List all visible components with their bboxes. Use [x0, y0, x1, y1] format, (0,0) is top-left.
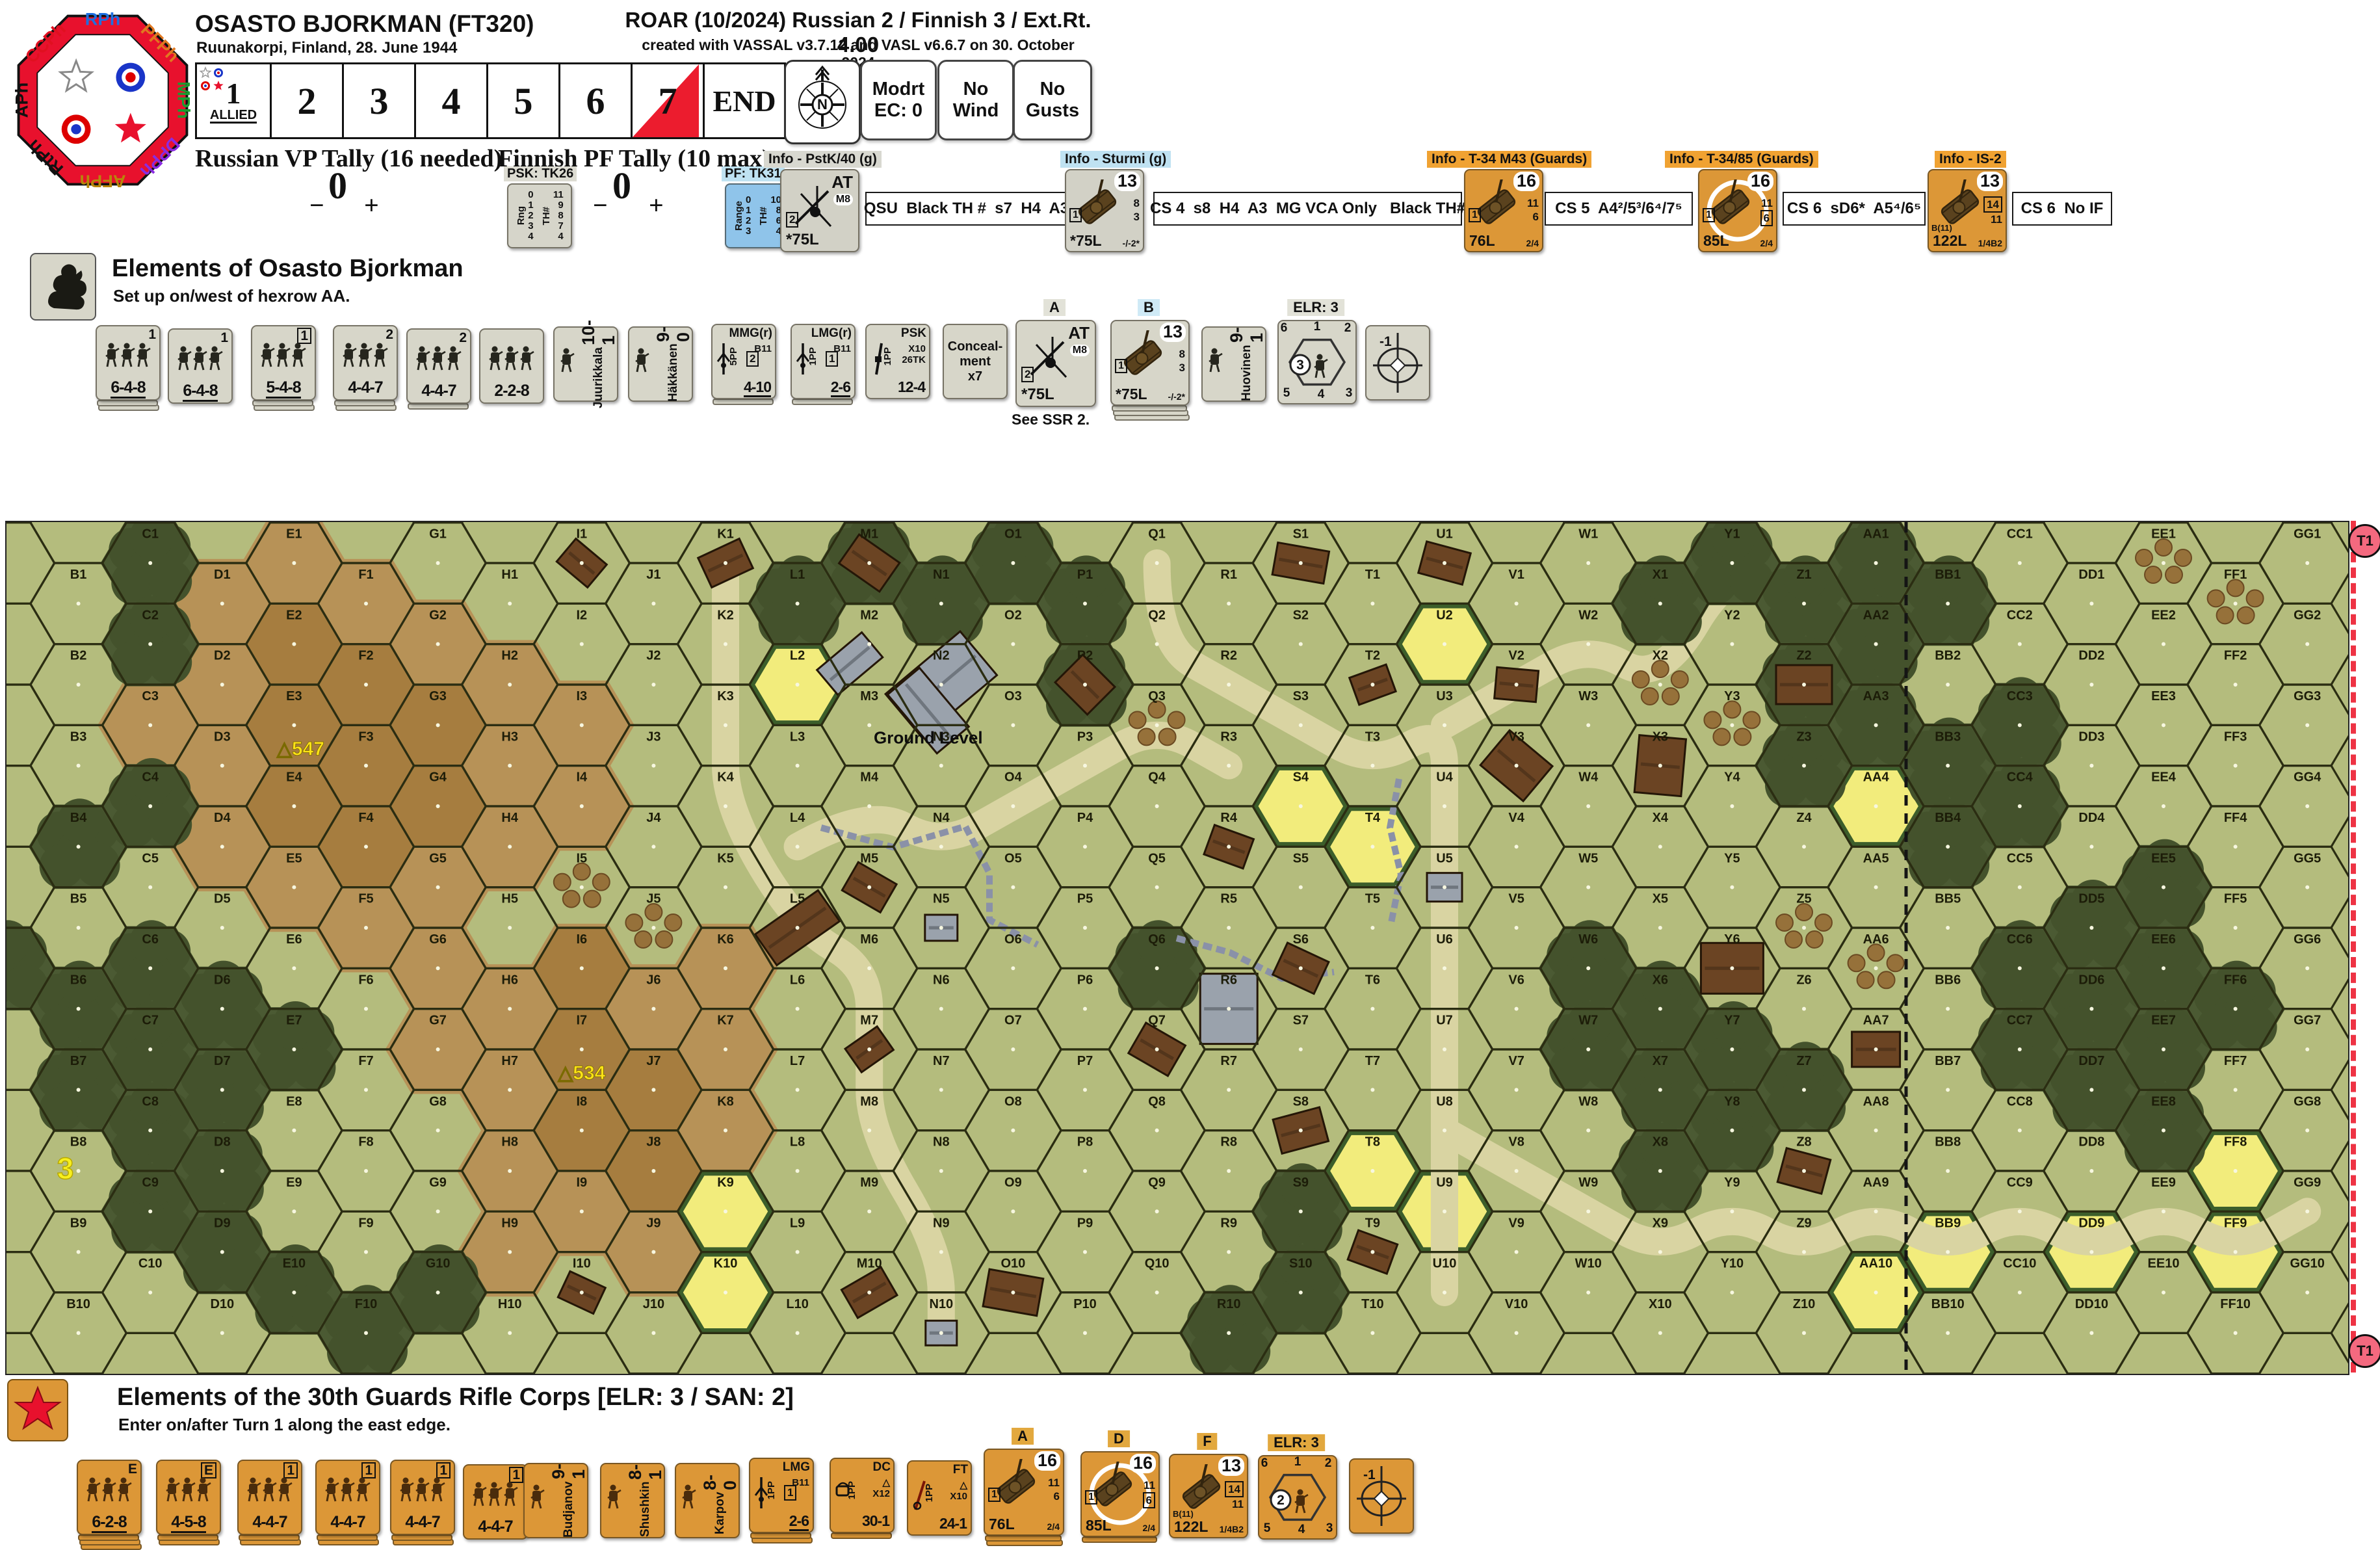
tk-col-label: TH# — [541, 207, 552, 225]
hex-label: Y3 — [1724, 689, 1740, 703]
hex-center-dot — [292, 642, 296, 646]
infantry-figures-icon — [164, 1475, 212, 1504]
ec-button[interactable]: ModrtEC: 0 — [860, 60, 937, 140]
counter-crosshair-rus-16[interactable]: -1 — [1349, 1458, 1411, 1531]
hex-center-dot — [651, 764, 655, 768]
orchard-tree-icon — [1878, 971, 1895, 988]
hex-label: C8 — [142, 1094, 159, 1109]
hex-center-dot — [1083, 601, 1087, 605]
counter-4-4-7-rus-4[interactable]: 1 4-4-7 — [390, 1460, 452, 1532]
hex-center-dot — [1011, 561, 1015, 565]
hex-center-dot — [1515, 764, 1519, 768]
counter-face[interactable]: PSK 1PPX1026TK12-4 — [865, 324, 930, 399]
hex-label: L2 — [790, 649, 805, 663]
hex-center-dot — [1730, 966, 1734, 970]
tk-counter-0[interactable]: Rng01234TH#119874 — [507, 183, 572, 248]
hex-label: X6 — [1653, 973, 1668, 987]
svg-text:4: 4 — [1318, 387, 1325, 401]
counter-face[interactable]: 13831*75L-/-2* — [1065, 169, 1144, 252]
counter-vehicle-info-4[interactable]: 131411B(11)122L1/4B2 — [1928, 169, 2004, 250]
hex-label: Q4 — [1148, 770, 1166, 785]
hex-center-dot — [77, 1250, 81, 1254]
counter-4-4-7-rus-2[interactable]: 1 4-4-7 — [237, 1460, 300, 1532]
hex-center-dot — [1515, 926, 1519, 930]
counter-6-4-8-fin-0[interactable]: 1 6-4-8 — [96, 325, 158, 398]
counter-4-4-7-rus-5[interactable]: 1 4-4-7 — [463, 1464, 525, 1537]
counter-Shushkin-rus-7[interactable]: Shushkin8-1 — [600, 1463, 662, 1536]
counter-conceal-fin-11[interactable]: Conceal-mentx7 — [943, 324, 1005, 397]
counter-sniper-rus-15[interactable]: 1234562 ELR: 3 — [1258, 1455, 1335, 1537]
turn-cell-5[interactable]: 5 — [488, 62, 560, 139]
hex-label: Q3 — [1148, 689, 1166, 703]
hex-label: R3 — [1220, 729, 1237, 744]
hex-label: O9 — [1004, 1176, 1022, 1190]
vehicle-top-number: 16 — [1747, 172, 1773, 191]
phase-label-RPh: RPh — [85, 9, 121, 29]
hex-label: BB8 — [1935, 1135, 1961, 1149]
counter-face[interactable]: 1 4-4-7 — [315, 1460, 380, 1535]
hex-label: T8 — [1365, 1135, 1380, 1149]
counter-Karpov-rus-8[interactable]: Karpov8-0 — [675, 1463, 737, 1536]
hex-center-dot — [1083, 926, 1087, 930]
counter-Budjanov-rus-6[interactable]: Budjanov9-1 — [523, 1463, 586, 1536]
hex-center-dot — [867, 804, 871, 808]
hex-center-dot — [77, 683, 81, 687]
counter-face[interactable]: 2-2-8 — [479, 328, 544, 404]
counter-4-4-7-rus-3[interactable]: 1 4-4-7 — [315, 1460, 378, 1532]
counter-face[interactable]: 1 5-4-8 — [251, 325, 316, 401]
turn-cell-4[interactable]: 4 — [416, 62, 488, 139]
hex-label: P10 — [1073, 1297, 1097, 1311]
vehicle-gun-caliber: 122L — [1933, 232, 1967, 250]
infantry-figures-icon — [245, 1475, 293, 1504]
drm-value: -1 — [1380, 334, 1392, 349]
hex-label: M8 — [860, 1094, 878, 1109]
counter-face[interactable]: DC 1PP△X1230-1 — [830, 1458, 895, 1533]
counter-face[interactable]: 2 4-4-7 — [333, 325, 398, 401]
stack-layer — [408, 403, 469, 410]
counter-face[interactable]: 1 4-4-7 — [463, 1464, 528, 1540]
hex-label: GG2 — [2294, 608, 2321, 622]
hex-center-dot — [2234, 1250, 2238, 1254]
hex-center-dot — [1658, 1007, 1662, 1011]
orchard-tree-icon — [1796, 904, 1812, 921]
sw-codes: B11 — [754, 343, 772, 354]
infantry-figures-icon — [341, 341, 389, 369]
hex-center-dot — [1730, 886, 1734, 889]
squad-class-superscript: 2 — [386, 328, 393, 341]
compass-button[interactable]: N — [784, 60, 861, 144]
hex-center-dot — [724, 1291, 727, 1294]
hex-label: GG3 — [2294, 689, 2321, 703]
counter-Juurikkala-fin-6[interactable]: Juurikkala10-1 — [553, 326, 616, 399]
hex-center-dot — [1227, 1088, 1231, 1092]
counter-face[interactable]: E 6-2-8 — [77, 1460, 142, 1535]
counter-2-2-8-fin-5[interactable]: 2-2-8 — [479, 328, 542, 401]
hex-center-dot — [580, 804, 584, 808]
counter-face[interactable]: FT 1PP△X1024-1 — [907, 1460, 972, 1536]
counter-face[interactable]: 1234563 — [1277, 320, 1357, 404]
russian-vp-minus[interactable]: − — [309, 190, 324, 220]
hex-label: N4 — [933, 811, 950, 825]
vehicle-top-number: 16 — [1513, 172, 1539, 191]
hex-label: S7 — [1293, 1014, 1309, 1028]
tk-col-values: 01234 — [528, 190, 533, 242]
hex-label: CC9 — [2007, 1176, 2033, 1190]
hex-center-dot — [1083, 1007, 1087, 1011]
turn-number: 3 — [370, 79, 389, 123]
counter-letter-label: F — [1197, 1433, 1217, 1450]
russian-star-emblem[interactable] — [7, 1378, 69, 1442]
hex-label: Z4 — [1796, 811, 1812, 825]
orchard-tree-icon — [2247, 590, 2264, 607]
counter-face[interactable]: 16116176L2/4 — [984, 1449, 1064, 1536]
orchard-tree-icon — [1887, 954, 1904, 971]
orchard-tree-icon — [1815, 914, 1832, 931]
hex-label: B6 — [70, 973, 87, 987]
counter-face[interactable]: LMG(r) 1PP1B112-6 — [791, 324, 856, 399]
gusts-button[interactable]: NoGusts — [1013, 60, 1092, 140]
counter-2-6-fin-9[interactable]: LMG(r) 1PP1B112-6 — [791, 324, 853, 397]
turn-cell-6[interactable]: 6 — [560, 62, 633, 139]
orchard-tree-icon — [2238, 607, 2255, 624]
hex-center-dot — [1586, 561, 1590, 565]
hex-center-dot — [867, 1129, 871, 1133]
hex-center-dot — [1586, 642, 1590, 646]
counter-vehicle-info-1[interactable]: 13831*75L-/-2* — [1065, 169, 1142, 250]
hex-center-dot — [1658, 926, 1662, 930]
counter-vehicle-fin-13[interactable]: 13831*75L-/-2*B — [1110, 320, 1187, 403]
counter-Huovinen-fin-14[interactable]: Huovinen9-1 — [1201, 326, 1264, 399]
info-note-0: QSU Black TH # s7 H4 A3 — [865, 192, 1067, 226]
squad-strength: 4-4-7 — [391, 1513, 454, 1532]
counter-face[interactable]: Juurikkala10-1 — [553, 326, 618, 402]
hex-center-dot — [796, 1331, 800, 1335]
finnish-pf-minus[interactable]: − — [593, 190, 608, 220]
hex-label: L9 — [790, 1216, 805, 1230]
counter-face[interactable]: 1 4-4-7 — [237, 1460, 302, 1535]
hex-center-dot — [2234, 1007, 2238, 1011]
hex-label: GG9 — [2294, 1176, 2321, 1190]
hex-label: FF5 — [2224, 892, 2247, 906]
hex-center-dot — [1658, 764, 1662, 768]
orchard-tree-icon — [655, 931, 672, 948]
info-note-1: CS 4 s8 H4 A3 MG VCA Only Black TH# — [1153, 192, 1462, 226]
squad-figures — [259, 341, 307, 373]
counter-face[interactable]: 16116185L2/4 — [1698, 169, 1777, 252]
counter-2-6-rus-9[interactable]: LMG 1PP1B112-6 — [749, 1458, 811, 1530]
squad-strength: 4-4-7 — [464, 1517, 527, 1536]
finnish-pf-plus[interactable]: + — [649, 190, 664, 220]
hex-label: S8 — [1293, 1094, 1309, 1109]
compass-north-label: N — [817, 96, 828, 112]
hex-center-dot — [2018, 804, 2022, 808]
hex-label: E7 — [286, 1014, 302, 1028]
orchard-tree-icon — [2175, 549, 2191, 566]
phase-label-MPh: MPh — [174, 81, 194, 119]
hex-label: R9 — [1220, 1216, 1237, 1230]
hex-center-dot — [148, 1047, 152, 1051]
hex-label: Y5 — [1724, 851, 1740, 865]
counter-face[interactable]: Conceal-mentx7 — [943, 324, 1008, 399]
hex-label: EE1 — [2151, 527, 2176, 542]
counter-5-4-8-fin-2[interactable]: 1 5-4-8 — [251, 325, 313, 398]
counter-face[interactable]: ATM82*75L — [1015, 320, 1096, 407]
turn-cell-2[interactable]: 2 — [272, 62, 344, 139]
t1-entry-marker-2[interactable]: T1 — [2348, 1334, 2380, 1368]
hex-center-dot — [2305, 1047, 2309, 1051]
hex-center-dot — [1011, 1291, 1015, 1294]
hex-label: AA3 — [1863, 689, 1889, 703]
hex-center-dot — [1155, 966, 1159, 970]
counter-face[interactable]: LMG 1PP1B112-6 — [749, 1458, 814, 1533]
hex-center-dot — [364, 1088, 368, 1092]
tk-col-label: Rng — [516, 206, 527, 225]
hex-center-dot — [1370, 1007, 1374, 1011]
hex-label: D8 — [214, 1135, 231, 1149]
counter-12-4-fin-10[interactable]: PSK 1PPX1026TK12-4 — [865, 324, 928, 397]
hex-center-dot — [508, 1007, 512, 1011]
counter-face[interactable]: 1 6-4-8 — [96, 325, 161, 401]
t1-entry-marker-1[interactable]: T1 — [2348, 524, 2380, 558]
orchard-tree-icon — [584, 891, 601, 908]
counter-face[interactable]: E 4-5-8 — [156, 1460, 221, 1535]
counter-4-4-7-fin-4[interactable]: 2 4-4-7 — [406, 328, 469, 401]
hex-center-dot — [1730, 1291, 1734, 1294]
counter-face[interactable]: Budjanov9-1 — [523, 1463, 588, 1538]
counter-AT-fin-12[interactable]: ATM82*75LASee SSR 2. — [1015, 320, 1093, 404]
leader-name-block: Häkkänen9-0 — [657, 330, 690, 398]
sw-pp: 1PP — [882, 347, 893, 365]
hex-center-dot — [2305, 723, 2309, 727]
hex-label: M7 — [860, 1014, 878, 1028]
landmark-△547: △547 — [276, 738, 324, 759]
counter-face[interactable]: 16116176L2/4 — [1464, 169, 1543, 252]
counter-face[interactable]: 13831*75L-/-2* — [1110, 320, 1190, 406]
counter-crosshair-fin-16[interactable]: -1 — [1365, 325, 1428, 398]
hex-center-dot — [1227, 926, 1231, 930]
info-label-4: Info - IS-2 — [1935, 151, 2006, 168]
hex-center-dot — [1730, 1129, 1734, 1133]
infantry-figures-icon — [471, 1480, 519, 1508]
hex-label: F1 — [358, 568, 373, 582]
counter-vehicle-rus-12[interactable]: 16116176L2/4A — [984, 1449, 1062, 1533]
russian-vp-plus[interactable]: + — [364, 190, 379, 220]
counter-face[interactable]: -1 — [1365, 325, 1430, 401]
finnish-lion-emblem[interactable] — [29, 252, 97, 321]
hex-label: BB9 — [1935, 1216, 1961, 1230]
hex-label: Y10 — [1721, 1257, 1744, 1271]
hex-center-dot — [364, 1007, 368, 1011]
hex-label: E2 — [286, 608, 302, 622]
hex-label: G6 — [429, 932, 447, 947]
counter-Häkkänen-fin-7[interactable]: Häkkänen9-0 — [628, 326, 690, 399]
turn-cell-7[interactable]: 7 — [633, 62, 705, 139]
hex-center-dot — [1802, 1007, 1806, 1011]
counter-face[interactable]: 1 4-4-7 — [390, 1460, 455, 1535]
counter-30-1-rus-10[interactable]: DC 1PP△X1230-1 — [830, 1458, 892, 1530]
counter-face[interactable]: ATM82*75L — [780, 169, 859, 252]
squad-strength: 6-2-8 — [78, 1513, 140, 1532]
hex-label: U9 — [1436, 1176, 1453, 1190]
hex-center-dot — [292, 1129, 296, 1133]
counter-letter-label: A — [1012, 1428, 1034, 1445]
hex-center-dot — [1658, 683, 1662, 687]
hex-center-dot — [292, 561, 296, 565]
map-canvas[interactable]: B1B2B3B4B5B6B7B8B9B10C1C2C3C4C5C6C7C8C9C… — [7, 522, 2348, 1374]
turn-cell-END[interactable]: END — [705, 62, 786, 139]
counter-face[interactable]: 131411B(11)122L1/4B2 — [1169, 1454, 1248, 1538]
hex-center-dot — [1299, 1291, 1303, 1294]
svg-text:3: 3 — [1346, 386, 1353, 400]
hex-label: CC3 — [2007, 689, 2033, 703]
sniper-activation-number: 2 — [1277, 1493, 1285, 1508]
counter-face[interactable]: MMG(r) 5PP2B114-10 — [711, 324, 776, 399]
hex-center-dot — [1083, 1088, 1087, 1092]
hex-label: L10 — [786, 1297, 808, 1311]
gun-boxed-number: 2 — [1021, 367, 1034, 382]
hex-center-dot — [1011, 642, 1015, 646]
counter-4-10-fin-8[interactable]: MMG(r) 5PP2B114-10 — [711, 324, 774, 397]
hex-label: R6 — [1220, 973, 1237, 987]
hex-center-dot — [1874, 966, 1878, 970]
hex-label: GG8 — [2294, 1094, 2321, 1109]
counter-vehicle-rus-14[interactable]: 131411B(11)122L1/4B2F — [1169, 1454, 1246, 1536]
svg-text:1: 1 — [1314, 321, 1321, 334]
counter-6-2-8-rus-0[interactable]: E 6-2-8 — [77, 1460, 139, 1532]
counter-face[interactable]: Huovinen9-1 — [1201, 326, 1266, 402]
hex-center-dot — [2018, 1291, 2022, 1294]
hex-label: Y7 — [1724, 1014, 1740, 1028]
tk-title-1: PF: TK31 — [722, 166, 785, 181]
hex-center-dot — [220, 926, 224, 930]
hex-label: K6 — [717, 932, 734, 947]
hex-label: J8 — [646, 1135, 660, 1149]
hex-label: R2 — [1220, 649, 1237, 663]
sw-strength: 2-6 — [789, 1512, 809, 1530]
hex-center-dot — [1874, 804, 1878, 808]
hex-center-dot — [1370, 845, 1374, 848]
hex-label: Y6 — [1724, 932, 1740, 947]
hex-center-dot — [796, 1250, 800, 1254]
hex-label: J2 — [646, 649, 660, 663]
counter-face[interactable]: Shushkin8-1 — [600, 1463, 665, 1538]
counter-sniper-fin-15[interactable]: 1234563 ELR: 3 — [1277, 320, 1354, 402]
hex-center-dot — [1946, 1331, 1950, 1335]
hex-center-dot — [1227, 764, 1231, 768]
vasl-map-board[interactable]: B1B2B3B4B5B6B7B8B9B10C1C2C3C4C5C6C7C8C9C… — [5, 521, 2349, 1375]
hex-label: O6 — [1004, 932, 1022, 947]
hex-center-dot — [1586, 1129, 1590, 1133]
counter-4-5-8-rus-1[interactable]: E 4-5-8 — [156, 1460, 218, 1532]
hex-center-dot — [77, 845, 81, 848]
hex-center-dot — [724, 723, 727, 727]
hex-label: AA2 — [1863, 608, 1889, 622]
counter-face[interactable]: 1 6-4-8 — [168, 328, 233, 404]
counter-vehicle-info-2[interactable]: 16116176L2/4 — [1464, 169, 1541, 250]
counter-6-4-8-fin-1[interactable]: 1 6-4-8 — [168, 328, 230, 401]
counter-face[interactable]: 131411B(11)122L1/4B2 — [1928, 169, 2007, 252]
wind-button[interactable]: NoWind — [937, 60, 1014, 140]
tk-col: TH#10864 — [758, 195, 781, 237]
hex-center-dot — [2018, 723, 2022, 727]
hex-center-dot — [580, 642, 584, 646]
orchard-tree-icon — [1138, 728, 1155, 745]
counter-face[interactable]: Karpov8-0 — [675, 1463, 740, 1538]
hex-label: J1 — [646, 568, 660, 582]
hex-center-dot — [1946, 1250, 1950, 1254]
hex-label: F8 — [358, 1135, 373, 1149]
hex-label: T7 — [1365, 1054, 1380, 1068]
counter-4-4-7-fin-3[interactable]: 2 4-4-7 — [333, 325, 395, 398]
hex-label: I8 — [576, 1094, 587, 1109]
hex-label: U7 — [1436, 1014, 1453, 1028]
stack-layer — [157, 1534, 218, 1541]
hex-center-dot — [1658, 1169, 1662, 1173]
turn-cell-1[interactable]: 1ALLIED — [195, 62, 272, 139]
hex-center-dot — [1011, 804, 1015, 808]
hex-label: L3 — [790, 729, 805, 744]
hex-center-dot — [1874, 1129, 1878, 1133]
hex-label: B4 — [70, 811, 87, 825]
counter-vehicle-rus-13[interactable]: 16116185L2/4D — [1080, 1451, 1157, 1534]
hex-center-dot — [796, 601, 800, 605]
hex-label: V10 — [1505, 1297, 1528, 1311]
orchard-tree-icon — [593, 874, 610, 891]
hex-label: Z6 — [1796, 973, 1811, 987]
aiming-point-icon: -1 — [1367, 326, 1429, 399]
counter-face[interactable]: -1 — [1349, 1458, 1414, 1534]
counter-face[interactable]: Häkkänen9-0 — [628, 326, 693, 402]
hex-center-dot — [508, 1331, 512, 1335]
counter-vehicle-info-3[interactable]: 16116185L2/4 — [1698, 169, 1775, 250]
hex-label: E4 — [286, 770, 302, 785]
hex-center-dot — [77, 764, 81, 768]
hex-center-dot — [1227, 683, 1231, 687]
hex-label: C9 — [142, 1176, 159, 1190]
hex-label: B9 — [70, 1216, 87, 1230]
hex-label: Z8 — [1796, 1135, 1811, 1149]
hex-label: CC2 — [2007, 608, 2033, 622]
hex-label: CC7 — [2007, 1014, 2033, 1028]
vehicle-top-number: 13 — [1160, 322, 1186, 342]
hex-center-dot — [2018, 1209, 2022, 1213]
sw-strength: 4-10 — [744, 378, 771, 396]
hex-center-dot — [2305, 966, 2309, 970]
hex-label: V9 — [1508, 1216, 1524, 1230]
hex-label: T10 — [1361, 1297, 1383, 1311]
hex-label: F6 — [358, 973, 373, 987]
counter-face[interactable]: 16116185L2/4 — [1080, 1451, 1160, 1537]
tk-col-label: TH# — [758, 207, 769, 225]
hex-label: D10 — [210, 1297, 234, 1311]
hex-label: O3 — [1004, 689, 1022, 703]
counter-24-1-rus-11[interactable]: FT 1PP△X1024-1 — [907, 1460, 969, 1533]
phase-wheel-logo[interactable]: RPhPFPhMPhDPPhAFPhRtPhAPhCCPh — [8, 5, 198, 195]
hex-center-dot — [1155, 886, 1159, 889]
hex-center-dot — [1155, 804, 1159, 808]
counter-AT-info-0[interactable]: ATM82*75L — [780, 169, 857, 250]
counter-face[interactable]: 1234562 — [1258, 1455, 1337, 1540]
hex-center-dot — [436, 804, 440, 808]
hex-label: G5 — [429, 851, 447, 865]
hex-center-dot — [1299, 723, 1303, 727]
hex-center-dot — [580, 966, 584, 970]
orchard-tree-icon — [664, 914, 681, 931]
hex-center-dot — [1370, 1331, 1374, 1335]
turn-cell-3[interactable]: 3 — [344, 62, 416, 139]
counter-face[interactable]: 2 4-4-7 — [406, 328, 471, 404]
